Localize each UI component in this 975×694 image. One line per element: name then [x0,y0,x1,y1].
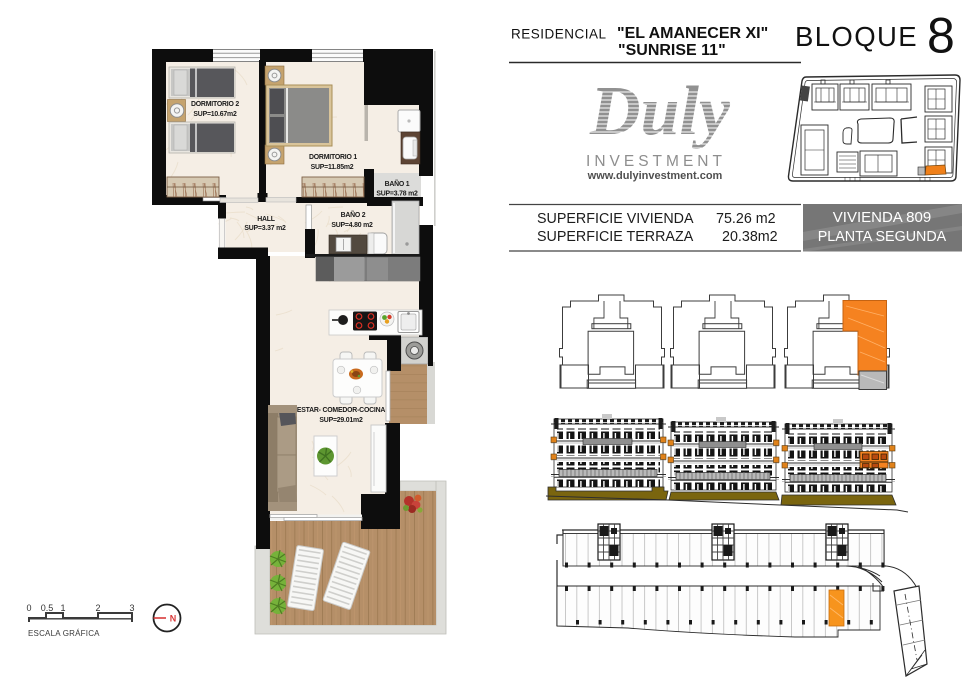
svg-text:www.dulyinvestment.com: www.dulyinvestment.com [587,170,723,182]
svg-text:ESTAR- COMEDOR-COCINA: ESTAR- COMEDOR-COCINA [297,407,386,414]
svg-text:2: 2 [95,603,100,613]
svg-text:SUP=3.37 m2: SUP=3.37 m2 [244,225,286,232]
svg-text:SUP=3.78 m2: SUP=3.78 m2 [376,191,418,198]
svg-text:SUPERFICIE VIVIENDA: SUPERFICIE VIVIENDA [537,211,694,227]
svg-text:DORMITORIO 1: DORMITORIO 1 [309,154,357,161]
svg-text:DORMITORIO 2: DORMITORIO 2 [191,101,239,108]
svg-text:SUPERFICIE TERRAZA: SUPERFICIE TERRAZA [537,229,694,245]
svg-text:HALL: HALL [257,216,275,223]
svg-text:BLOQUE: BLOQUE [795,21,918,52]
svg-text:0.5: 0.5 [41,603,54,613]
svg-text:3: 3 [129,603,134,613]
svg-text:SUP=11.85m2: SUP=11.85m2 [311,164,354,171]
svg-text:N: N [170,614,177,624]
svg-text:SUP=10.67m2: SUP=10.67m2 [193,111,237,118]
svg-text:INVESTMENT: INVESTMENT [586,153,726,170]
svg-text:ESCALA GRÁFICA: ESCALA GRÁFICA [28,629,100,638]
svg-text:20.38m2: 20.38m2 [722,229,778,245]
svg-text:1: 1 [60,603,65,613]
svg-text:"EL AMANECER XI": "EL AMANECER XI" [617,25,768,42]
svg-text:75.26 m2: 75.26 m2 [716,211,776,227]
svg-text:8: 8 [927,8,955,64]
svg-text:VIVIENDA 809: VIVIENDA 809 [833,209,931,226]
svg-text:BAÑO 2: BAÑO 2 [341,210,366,219]
svg-text:SUP=4.80 m2: SUP=4.80 m2 [331,222,373,229]
svg-text:SUP=29.01m2: SUP=29.01m2 [319,417,363,424]
svg-text:BAÑO 1: BAÑO 1 [385,179,410,188]
svg-text:"SUNRISE 11": "SUNRISE 11" [618,42,726,59]
svg-text:PLANTA SEGUNDA: PLANTA SEGUNDA [818,229,947,245]
svg-text:RESIDENCIAL: RESIDENCIAL [511,27,607,42]
svg-text:0: 0 [26,603,31,613]
